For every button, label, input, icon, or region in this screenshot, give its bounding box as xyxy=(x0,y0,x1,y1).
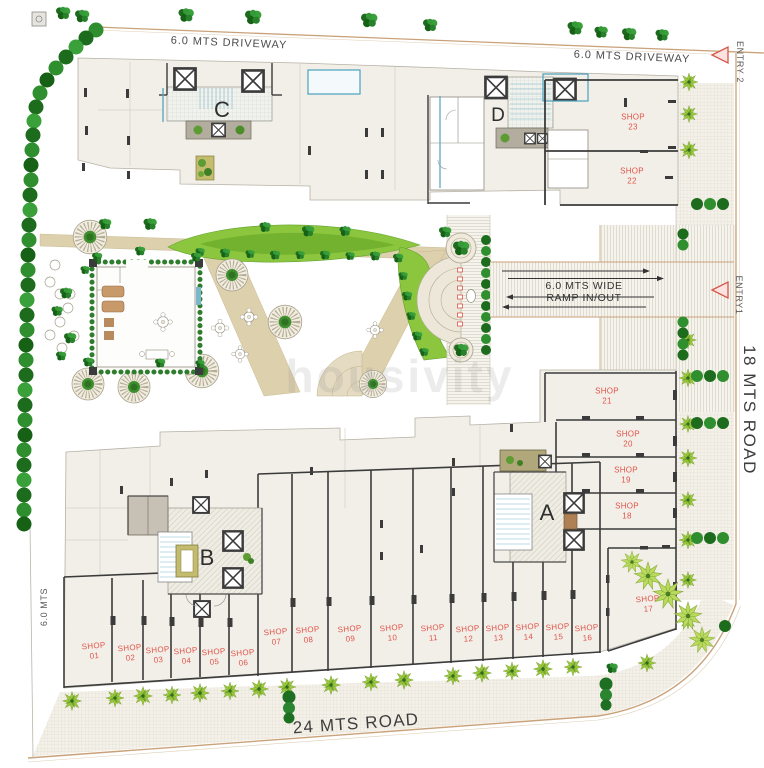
shop-label-20: SHOP20 xyxy=(616,429,640,448)
hedge-row-lane xyxy=(481,235,491,355)
shop-label-16: SHOP16 xyxy=(574,622,599,643)
entry2-label: ENTRY 2 xyxy=(735,41,745,83)
top-road-trees xyxy=(56,7,669,41)
shop-label-17: SHOP17 xyxy=(635,593,660,614)
shop-label-05: SHOP05 xyxy=(201,646,226,667)
tower-a-label: A xyxy=(540,500,555,526)
shop-label-19: SHOP19 xyxy=(614,465,638,484)
shop-label-04: SHOP04 xyxy=(173,645,198,666)
shop-label-21: SHOP21 xyxy=(595,386,619,405)
road-18-label: 18 MTS ROAD xyxy=(739,345,759,475)
shop-label-10: SHOP10 xyxy=(379,622,404,643)
upper-building-block xyxy=(78,58,678,205)
shop-label-15: SHOP15 xyxy=(545,621,570,642)
shop-label-18: SHOP18 xyxy=(615,501,639,520)
shop-label-12: SHOP12 xyxy=(455,623,480,644)
left-margin-label: 6.0 MTS xyxy=(39,588,49,626)
ramp-label: 6.0 MTS WIDE RAMP IN/OUT xyxy=(545,280,622,304)
shop-label-02: SHOP02 xyxy=(117,642,142,663)
shop-label-14: SHOP14 xyxy=(515,621,540,642)
shop-label-01: SHOP01 xyxy=(81,640,106,661)
shop-label-23: SHOP23 xyxy=(621,112,645,131)
shop-label-03: SHOP03 xyxy=(145,644,170,665)
shop-label-06: SHOP06 xyxy=(230,647,255,668)
entry1-label: ENTRY1 xyxy=(734,276,744,315)
lane-markings xyxy=(458,268,463,326)
clubhouse xyxy=(89,259,203,375)
balcony-blue-1 xyxy=(308,70,360,94)
shop-label-09: SHOP09 xyxy=(337,623,362,644)
tower-b-label: B xyxy=(200,545,215,571)
tower-c-label: C xyxy=(214,97,230,123)
tower-d-label: D xyxy=(491,105,505,127)
watermark: housivity xyxy=(286,349,515,403)
shop-label-11: SHOP11 xyxy=(420,622,445,643)
corner-marker-icon xyxy=(32,12,46,26)
shop-label-07: SHOP07 xyxy=(263,626,288,647)
shop-label-08: SHOP08 xyxy=(295,624,320,645)
entry2-arrow-icon xyxy=(712,47,728,63)
shop-label-22: SHOP22 xyxy=(620,166,644,185)
shop-label-13: SHOP13 xyxy=(485,622,510,643)
site-plan: housivity 6.0 MTS DRIVEWAY 6.0 MTS DRIVE… xyxy=(0,0,764,768)
